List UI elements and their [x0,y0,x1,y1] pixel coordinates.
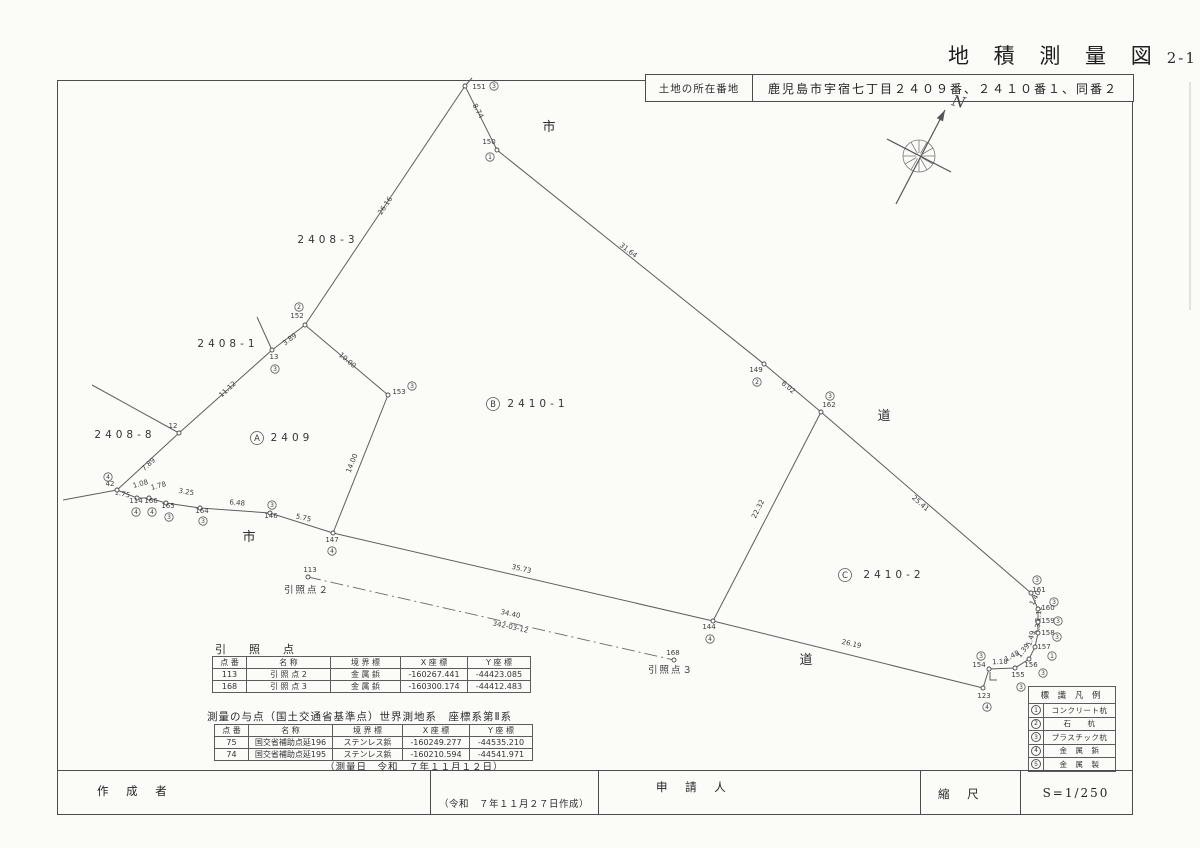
survey-boundary-line [713,412,821,621]
author-label: 作 成 者 [97,783,174,799]
table-cell: 75 [215,737,249,749]
point-number: 114 [129,497,143,505]
point-number: 152 [290,312,303,320]
survey-boundary-line [257,317,272,350]
table-cell: X 座 標 [403,725,470,737]
marker-type-digit: 3 [1035,577,1039,584]
scale-value: S=1/250 [1020,786,1132,800]
north-arrowhead [937,110,945,121]
applicant-label: 申 請 人 [656,779,733,795]
point-number: 159 [1041,617,1054,625]
table-cell: ステンレス鋲 [333,737,403,749]
boundary-point [386,393,390,397]
point-number: 123 [977,692,990,700]
table-row: 75 国交省補助点延196 ステンレス鋲 -160249.277 -44535.… [215,737,533,749]
legend-marker-name: 金 属 製 [1044,759,1115,770]
marker-type-digit: 3 [270,502,274,509]
table-cell: 引 照 点 2 [247,669,331,681]
marker-type-digit: 1 [488,154,492,161]
length-label: 342-03-12 [492,619,529,634]
point-number: 13 [270,353,279,361]
table-cell: 金 属 鋲 [331,669,401,681]
marker-type-digit: 3 [492,83,496,90]
road-label: 市 [542,119,555,135]
marker-type-digit: 3 [1052,599,1056,606]
length-label: 34.40 [500,608,521,620]
legend-marker-digit: 5 [1031,759,1041,769]
road-label: 道 [799,653,812,668]
control-point-table: 点 番 名 称 境 界 標 X 座 標 Y 座 標 75 国交省補助点延196 … [214,724,533,761]
table-cell: 名 称 [247,657,331,669]
length-label: 8.74 [471,102,486,120]
boundary-point [1013,666,1017,670]
parcel-number-label: 2408-8 [94,429,155,441]
scale-label: 縮 尺 [938,786,986,802]
created-date-note: （令和 ７年１１月２７日作成） [430,796,598,810]
road-label: 道 [877,409,890,424]
table-header-row: 点 番 名 称 境 界 標 X 座 標 Y 座 標 [215,725,533,737]
boundary-point [306,575,310,579]
parcel-number-label: 2409 [271,432,314,444]
table-cell: 境 界 標 [333,725,403,737]
boundary-point [495,148,499,152]
length-label: 1.08 [132,478,149,490]
table-cell: -160249.277 [403,737,470,749]
point-number: 155 [1011,671,1024,679]
survey-boundary-line [333,533,713,621]
table-cell: 境 界 標 [331,657,401,669]
legend-title: 標 識 凡 例 [1029,687,1115,704]
marker-type-digit: 4 [106,474,110,481]
legend-row: 4 金 属 鋲 [1029,745,1115,759]
table-cell: -44423.085 [468,669,531,681]
legend-row: 2 石 杭 [1029,718,1115,732]
table-cell: 113 [213,669,247,681]
table-cell: X 座 標 [401,657,468,669]
point-number: 168 [666,649,679,657]
boundary-point [1036,607,1040,611]
table-cell: 名 称 [249,725,333,737]
marker-type-digit: 3 [273,366,277,373]
parcel-number-label: 2410-2 [863,569,924,581]
table-row: 113 引 照 点 2 金 属 鋲 -160267.441 -44423.085 [213,669,531,681]
table-cell: 国交省補助点延195 [249,749,333,761]
boundary-point [987,667,991,671]
point-number: 146 [264,512,278,520]
length-label: 31.64 [618,241,639,260]
boundary-point [463,84,467,88]
boundary-point [819,410,823,414]
road-label: 市 [242,529,255,545]
marker-type-digit: 3 [201,518,205,525]
table-cell: 74 [215,749,249,761]
footer-divider [920,770,921,814]
length-label: 1.78 [150,480,167,492]
ref-table-heading: 引 照 点 [215,641,300,657]
survey-map: 8.7426.1631.646.0225.4122.3210.003.8911.… [0,0,1200,848]
length-label: 35.73 [511,563,532,575]
legend-marker-digit: 4 [1031,746,1041,756]
legend-marker-name: コンクリート杭 [1044,705,1115,716]
marker-type-digit: 3 [1055,634,1059,641]
length-label: 7.89 [140,456,157,472]
reference-point-label: 引照点２ [284,585,330,596]
boundary-point [177,431,181,435]
parcel-letter: B [490,400,496,410]
parcel-letter: C [842,571,848,581]
legend-marker-name: プラスチック杭 [1044,732,1115,743]
marker-type-digit: 3 [979,653,983,660]
boundary-point [115,488,119,492]
table-row: 168 引 照 点 3 金 属 鋲 -160300.174 -44412.483 [213,681,531,693]
boundary-point [1036,631,1040,635]
marker-type-digit: 2 [755,379,759,386]
point-number: 150 [482,138,495,146]
parcel-number-label: 2410-1 [507,398,568,410]
parcel-number-label: 2408-3 [297,234,358,246]
survey-boundary-line [63,490,117,500]
boundary-point [303,323,307,327]
length-label: 3.25 [178,487,195,497]
parcel-number-label: 2408-1 [197,338,258,350]
table-cell: 168 [213,681,247,693]
marker-type-digit: 4 [985,704,989,711]
point-number: 12 [169,422,178,430]
marker-type-digit: 4 [134,509,138,516]
marker-type-digit: 3 [1056,618,1060,625]
survey-boundary-line [92,385,179,433]
point-number: 165 [161,502,174,510]
marker-type-digit: 3 [1019,684,1023,691]
boundary-point [981,686,985,690]
point-number: 164 [195,507,209,515]
legend-row: 5 金 属 製 [1029,758,1115,771]
survey-sheet: 地 積 測 量 図2-1 土地の所在番地 鹿児島市宇宿七丁目２４０９番、２４１０… [0,0,1200,848]
table-cell: Y 座 標 [470,725,533,737]
table-cell: 金 属 鋲 [331,681,401,693]
table-cell: -44535.210 [470,737,533,749]
legend-marker-name: 金 属 鋲 [1044,745,1115,756]
point-number: 149 [749,366,762,374]
point-number: 157 [1037,643,1050,651]
table-cell: -160300.174 [401,681,468,693]
length-label: 6.48 [229,498,245,507]
marker-type-digit: 3 [410,383,414,390]
length-label: 26.19 [841,638,862,650]
table-cell: 点 番 [213,657,247,669]
marker-type-digit: 3 [1041,670,1045,677]
table-cell: 国交省補助点延196 [249,737,333,749]
length-label: 22.32 [750,498,766,519]
point-number: 147 [325,536,338,544]
length-label: 11.12 [218,380,238,399]
table-cell: -44412.483 [468,681,531,693]
point-number: 154 [972,661,986,669]
north-label: N [949,91,968,112]
marker-type-digit: 2 [297,304,301,311]
parcel-letter: A [254,434,260,444]
table-cell: Y 座 標 [468,657,531,669]
point-number: 161 [1032,586,1045,594]
marker-type-digit: 3 [167,514,171,521]
marker-type-digit: 1 [1050,653,1054,660]
legend-row: 3 プラスチック杭 [1029,731,1115,745]
control-table-heading: 測量の与点（国土交通省基準点）世界測地系 座標系第Ⅱ系 [207,709,512,724]
length-label: 25.41 [910,494,930,513]
survey-boundary-line [333,395,388,533]
legend-marker-name: 石 杭 [1044,718,1115,729]
table-header-row: 点 番 名 称 境 界 標 X 座 標 Y 座 標 [213,657,531,669]
point-number: 113 [303,566,316,574]
table-cell: 引 照 点 3 [247,681,331,693]
boundary-point [672,658,676,662]
legend-row: 1 コンクリート杭 [1029,704,1115,718]
reference-point-table: 点 番 名 称 境 界 標 X 座 標 Y 座 標 113 引 照 点 2 金 … [212,656,531,693]
table-cell: 点 番 [215,725,249,737]
point-number: 166 [144,497,158,505]
marker-type-digit: 4 [708,636,712,643]
point-number: 151 [472,83,485,91]
marker-type-digit: 3 [828,393,832,400]
point-number: 144 [702,623,716,631]
length-label: 6.02 [780,379,797,395]
boundary-point [331,531,335,535]
boundary-point [270,348,274,352]
point-number: 153 [392,388,405,396]
legend-marker-digit: 3 [1031,732,1041,742]
survey-boundary-line [983,669,989,688]
legend-marker-digit: 2 [1031,719,1041,729]
marker-type-digit: 4 [330,548,334,555]
footer-divider [598,770,599,814]
survey-boundary-line [990,672,997,680]
length-label: 26.16 [376,195,394,217]
reference-point-label: 引照点３ [648,665,694,676]
survey-boundary-line [713,621,983,688]
point-number: 156 [1024,661,1038,669]
marker-type-digit: 4 [150,509,154,516]
dashed-reference-line [308,577,674,660]
legend-marker-digit: 1 [1031,705,1041,715]
footer-divider [57,770,1132,771]
length-label: 3.89 [281,332,298,348]
point-number: 162 [822,401,835,409]
boundary-point [1036,620,1040,624]
length-label: 10.00 [337,351,357,370]
table-cell: -160267.441 [401,669,468,681]
marker-legend: 標 識 凡 例 1 コンクリート杭 2 石 杭 3 プラスチック杭 4 金 属 … [1028,686,1116,772]
